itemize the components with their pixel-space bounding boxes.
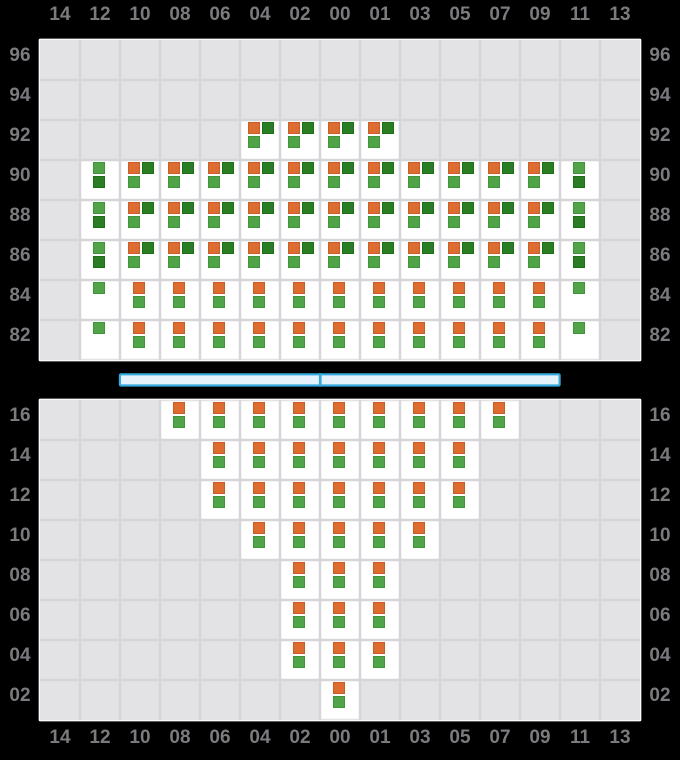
svg-text:05: 05 — [449, 727, 471, 748]
svg-text:94: 94 — [649, 85, 671, 106]
svg-text:11: 11 — [570, 727, 591, 748]
svg-text:08: 08 — [649, 565, 670, 586]
svg-text:07: 07 — [489, 4, 510, 25]
svg-text:07: 07 — [489, 727, 510, 748]
svg-text:02: 02 — [649, 685, 670, 706]
svg-text:88: 88 — [9, 205, 30, 226]
svg-text:10: 10 — [129, 4, 150, 25]
svg-text:88: 88 — [649, 205, 670, 226]
svg-text:05: 05 — [449, 4, 471, 25]
svg-text:01: 01 — [369, 4, 391, 25]
svg-text:08: 08 — [169, 727, 190, 748]
svg-text:02: 02 — [9, 685, 30, 706]
svg-text:08: 08 — [169, 4, 190, 25]
svg-text:86: 86 — [9, 245, 30, 266]
svg-text:00: 00 — [329, 4, 350, 25]
svg-text:10: 10 — [129, 727, 150, 748]
svg-text:14: 14 — [9, 445, 31, 466]
svg-text:06: 06 — [9, 605, 30, 626]
svg-text:13: 13 — [609, 4, 630, 25]
svg-text:06: 06 — [209, 727, 230, 748]
svg-text:82: 82 — [9, 325, 30, 346]
svg-text:12: 12 — [9, 485, 30, 506]
svg-text:90: 90 — [9, 165, 30, 186]
svg-text:12: 12 — [649, 485, 670, 506]
svg-text:86: 86 — [649, 245, 670, 266]
svg-text:82: 82 — [649, 325, 670, 346]
svg-text:16: 16 — [9, 405, 30, 426]
svg-text:09: 09 — [529, 4, 550, 25]
svg-text:16: 16 — [649, 405, 670, 426]
svg-text:04: 04 — [649, 645, 671, 666]
svg-text:09: 09 — [529, 727, 550, 748]
svg-text:14: 14 — [49, 4, 71, 25]
svg-text:12: 12 — [89, 727, 110, 748]
svg-text:13: 13 — [609, 727, 630, 748]
svg-text:10: 10 — [649, 525, 670, 546]
svg-text:10: 10 — [9, 525, 30, 546]
svg-text:96: 96 — [649, 45, 670, 66]
svg-text:96: 96 — [9, 45, 30, 66]
svg-text:84: 84 — [649, 285, 671, 306]
svg-text:04: 04 — [9, 645, 31, 666]
svg-text:00: 00 — [329, 727, 350, 748]
svg-text:02: 02 — [289, 4, 310, 25]
svg-text:90: 90 — [649, 165, 670, 186]
svg-text:14: 14 — [649, 445, 671, 466]
svg-text:94: 94 — [9, 85, 31, 106]
svg-text:92: 92 — [649, 125, 670, 146]
svg-text:14: 14 — [49, 727, 71, 748]
svg-text:03: 03 — [409, 727, 430, 748]
svg-text:92: 92 — [9, 125, 30, 146]
svg-text:04: 04 — [249, 727, 271, 748]
svg-text:06: 06 — [209, 4, 230, 25]
svg-text:84: 84 — [9, 285, 31, 306]
svg-text:06: 06 — [649, 605, 670, 626]
svg-text:08: 08 — [9, 565, 30, 586]
svg-text:04: 04 — [249, 4, 271, 25]
svg-text:11: 11 — [570, 4, 591, 25]
svg-text:12: 12 — [89, 4, 110, 25]
svg-text:03: 03 — [409, 4, 430, 25]
svg-text:02: 02 — [289, 727, 310, 748]
svg-text:01: 01 — [369, 727, 391, 748]
